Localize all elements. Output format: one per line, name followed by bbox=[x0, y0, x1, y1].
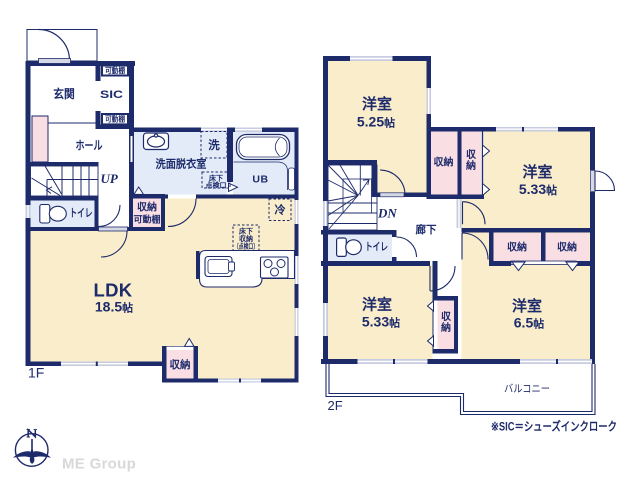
svg-text:2F: 2F bbox=[328, 398, 343, 413]
svg-text:可動棚: 可動棚 bbox=[105, 66, 125, 75]
svg-text:UP: UP bbox=[101, 171, 119, 186]
svg-text:洋室: 洋室 bbox=[512, 297, 542, 315]
svg-text:収納: 収納 bbox=[434, 156, 454, 169]
svg-text:可動棚: 可動棚 bbox=[134, 214, 161, 225]
svg-text:洋室: 洋室 bbox=[362, 296, 392, 314]
svg-text:バルコニー: バルコニー bbox=[504, 383, 550, 395]
svg-text:収納: 収納 bbox=[239, 234, 253, 243]
svg-text:床下: 床下 bbox=[209, 174, 223, 183]
svg-text:収納: 収納 bbox=[557, 241, 577, 254]
svg-text:洋室: 洋室 bbox=[522, 163, 552, 181]
svg-text:収納: 収納 bbox=[507, 241, 527, 254]
svg-text:〔点検口〕: 〔点検口〕 bbox=[234, 242, 258, 251]
svg-text:納: 納 bbox=[441, 321, 451, 334]
svg-text:SIC: SIC bbox=[100, 89, 123, 101]
svg-text:点検口: 点検口 bbox=[206, 181, 227, 190]
svg-text:洗: 洗 bbox=[208, 138, 220, 152]
svg-text:床下: 床下 bbox=[239, 227, 253, 236]
svg-text:トイレ: トイレ bbox=[365, 241, 388, 253]
svg-text:可動棚: 可動棚 bbox=[105, 115, 125, 124]
svg-text:収: 収 bbox=[441, 311, 452, 323]
svg-text:収: 収 bbox=[466, 149, 477, 161]
svg-text:UB: UB bbox=[252, 173, 268, 185]
svg-text:ホール: ホール bbox=[76, 139, 103, 153]
svg-text:廊下: 廊下 bbox=[416, 223, 437, 236]
svg-text:収納: 収納 bbox=[170, 358, 191, 371]
svg-text:洋室: 洋室 bbox=[362, 95, 392, 113]
svg-text:LDK: LDK bbox=[94, 280, 133, 301]
svg-text:ME Group: ME Group bbox=[62, 456, 136, 473]
svg-text:冷: 冷 bbox=[275, 203, 286, 217]
svg-text:玄関: 玄関 bbox=[53, 86, 75, 101]
svg-text:収納: 収納 bbox=[137, 201, 157, 214]
svg-text:納: 納 bbox=[466, 159, 476, 172]
svg-text:DN: DN bbox=[377, 206, 397, 221]
svg-text:1F: 1F bbox=[28, 365, 44, 381]
svg-text:洗面脱衣室: 洗面脱衣室 bbox=[156, 157, 207, 171]
svg-text:トイレ: トイレ bbox=[70, 207, 93, 220]
svg-text:※SIC＝シューズインクローク: ※SIC＝シューズインクローク bbox=[491, 419, 617, 434]
